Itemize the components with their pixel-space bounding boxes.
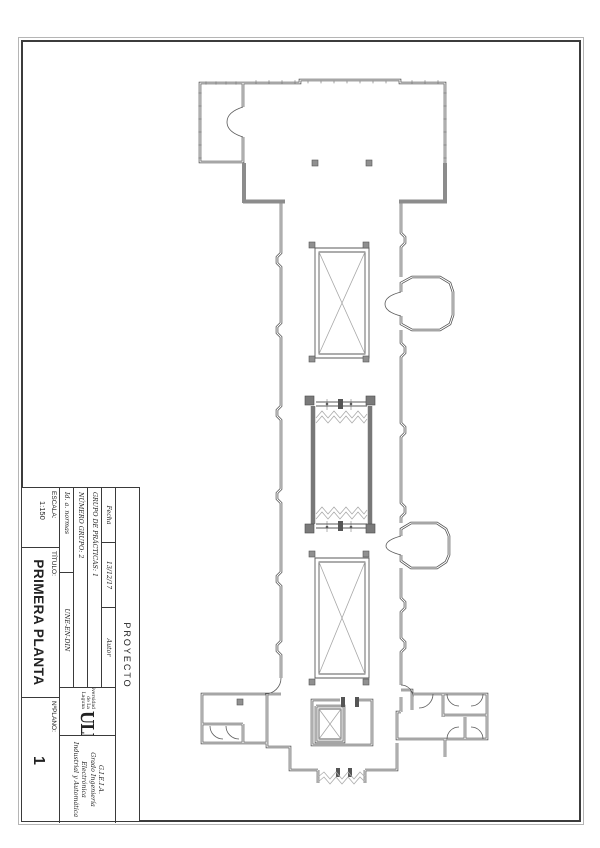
university-name: Universidad de La Laguna <box>80 688 96 709</box>
fecha-label-cell: Fecha <box>101 488 115 543</box>
titulo-label: TÍTULO: <box>49 551 57 697</box>
project-header-cell: PROYECTO <box>115 488 139 823</box>
id-normas-value-cell: UNE-EN-DIN <box>59 573 73 688</box>
escala-label: ESCALA: <box>49 491 57 547</box>
numero-grupo-cell: NÚMERO GRUPO: 2 <box>73 488 87 688</box>
escala-value: 1:150 <box>38 501 47 547</box>
nplano-cell: NºPLANO: 1 <box>21 698 59 823</box>
columns <box>237 160 372 705</box>
courtyard-side-walls <box>313 406 370 524</box>
shaft-x-braces <box>319 252 365 739</box>
degree-name-2: Industrial y Automática <box>71 742 80 817</box>
escala-cell: ESCALA: 1:150 <box>21 488 59 548</box>
degree-cell: G.I.E.I.A. Grado Ingeniería Electrónica … <box>59 736 115 823</box>
nplano-value: 1 <box>29 698 47 823</box>
courtyard-corner-piers <box>305 396 375 533</box>
drawing-sheet: PROYECTO Fecha 13/12/17 Autor GRUPO DE P… <box>0 0 600 848</box>
autor-label-cell: Autor <box>101 608 115 688</box>
degree-acronym: G.I.E.I.A. <box>96 765 105 794</box>
stair-break-lines <box>316 411 367 784</box>
id-normas-label-cell: Id. a. normas <box>59 488 73 573</box>
sheet-title: PRIMERA PLANTA <box>31 548 46 697</box>
door-jamb-stubs <box>336 399 359 777</box>
solid-thick-walls <box>243 163 447 203</box>
ull-logo: ULL <box>77 711 98 736</box>
window-ticks <box>198 80 446 158</box>
grupo-practicas-cell: GRUPO DE PRÁCTICAS: 1 <box>87 488 101 688</box>
title-block: PROYECTO Fecha 13/12/17 Autor GRUPO DE P… <box>21 487 140 822</box>
nplano-label: NºPLANO: <box>49 701 57 823</box>
university-logo-cell: Universidad de La Laguna ULL <box>59 688 115 736</box>
fecha-value-cell: 13/12/17 <box>101 543 115 608</box>
proyecto-label: PROYECTO <box>123 622 133 688</box>
shaft-outlines <box>315 248 369 739</box>
degree-name-1: Grado Ingeniería Electrónica <box>79 736 96 823</box>
titulo-cell: TÍTULO: PRIMERA PLANTA <box>21 548 59 698</box>
